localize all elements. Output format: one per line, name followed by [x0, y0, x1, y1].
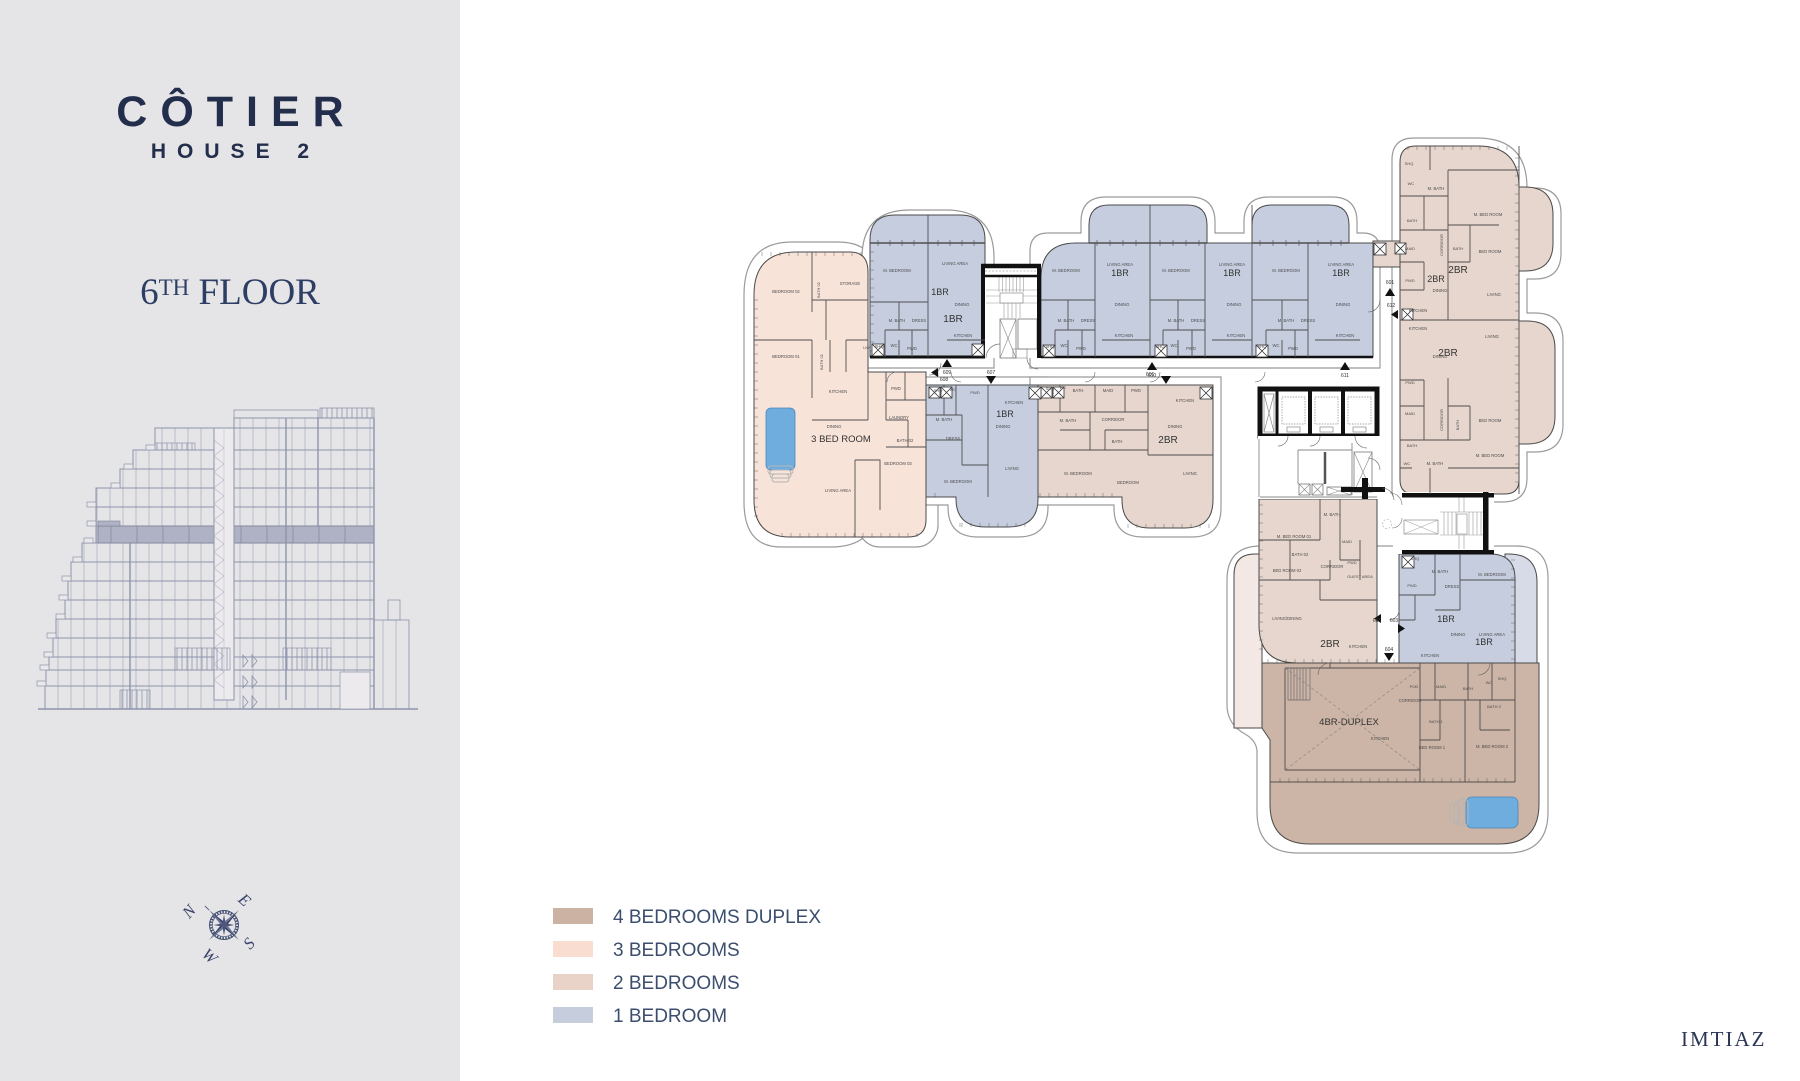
- svg-text:LIVING: LIVING: [1183, 471, 1197, 476]
- svg-text:CORRIDOR: CORRIDOR: [1102, 417, 1125, 422]
- svg-text:KITCHEN: KITCHEN: [829, 389, 847, 394]
- svg-text:LIVING: LIVING: [1485, 334, 1499, 339]
- svg-text:LIVING AREA: LIVING AREA: [1328, 262, 1354, 267]
- svg-text:LNN: LNN: [863, 346, 871, 350]
- svg-text:KITCHEN: KITCHEN: [1005, 400, 1023, 405]
- svg-text:M. BEDROOM: M. BEDROOM: [1052, 268, 1080, 273]
- svg-text:M. BATH: M. BATH: [1324, 512, 1341, 517]
- svg-text:M. BED ROOM: M. BED ROOM: [1476, 453, 1505, 458]
- svg-text:BED ROOM: BED ROOM: [1479, 249, 1502, 254]
- svg-text:DINING: DINING: [1433, 288, 1448, 293]
- svg-text:M. BATH: M. BATH: [936, 417, 953, 422]
- svg-text:SHQ: SHQ: [1257, 344, 1267, 349]
- svg-text:M. BEDROOM: M. BEDROOM: [1064, 471, 1092, 476]
- svg-text:1BR: 1BR: [1332, 268, 1350, 278]
- svg-text:DRESS: DRESS: [912, 318, 927, 323]
- svg-text:LIVING AREA: LIVING AREA: [942, 261, 968, 266]
- svg-text:605: 605: [1373, 618, 1382, 624]
- svg-text:BATH 02: BATH 02: [1292, 552, 1309, 557]
- svg-text:DRESS: DRESS: [1301, 318, 1316, 323]
- svg-text:WC: WC: [1061, 343, 1068, 348]
- svg-text:PWD: PWD: [1076, 346, 1086, 351]
- svg-text:KITCHEN: KITCHEN: [1227, 333, 1245, 338]
- svg-text:BATH 02: BATH 02: [816, 281, 821, 298]
- svg-text:609: 609: [943, 370, 952, 376]
- svg-text:LIVING AREA: LIVING AREA: [825, 488, 851, 493]
- svg-text:M. BEDROOM: M. BEDROOM: [1478, 572, 1506, 577]
- svg-text:WC: WC: [1486, 680, 1493, 685]
- svg-text:1BR: 1BR: [1475, 637, 1493, 647]
- svg-text:BATH 02: BATH 02: [897, 438, 914, 443]
- svg-text:WC: WC: [1408, 181, 1415, 186]
- svg-text:DRESS: DRESS: [1081, 318, 1096, 323]
- svg-text:BED ROOM 1: BED ROOM 1: [1419, 745, 1446, 750]
- svg-text:BEDROOM 02: BEDROOM 02: [772, 289, 800, 294]
- svg-text:BATH: BATH: [1112, 439, 1123, 444]
- svg-text:1BR: 1BR: [931, 287, 949, 297]
- svg-text:LIVING AREA: LIVING AREA: [1107, 262, 1133, 267]
- svg-text:1BR: 1BR: [1437, 614, 1455, 624]
- svg-text:LIVING AREA: LIVING AREA: [1479, 632, 1505, 637]
- svg-text:4BR-DUPLEX: 4BR-DUPLEX: [1319, 717, 1379, 728]
- svg-text:PWD: PWD: [1405, 380, 1414, 385]
- svg-text:KITCHEN: KITCHEN: [1115, 333, 1133, 338]
- svg-text:MAID: MAID: [1342, 539, 1352, 544]
- svg-text:BATH: BATH: [1463, 686, 1473, 691]
- svg-text:BATH: BATH: [1407, 218, 1417, 223]
- svg-text:WC: WC: [1273, 343, 1280, 348]
- svg-text:PWD: PWD: [1131, 388, 1141, 393]
- svg-text:POD: POD: [1410, 684, 1419, 689]
- svg-text:M. BATH: M. BATH: [1060, 418, 1077, 423]
- svg-text:BEDROOM 01: BEDROOM 01: [772, 354, 800, 359]
- svg-text:WC: WC: [1060, 385, 1067, 390]
- svg-text:PWD: PWD: [1407, 583, 1416, 588]
- svg-text:KITCHEN: KITCHEN: [1409, 308, 1427, 313]
- svg-text:BED ROOM 02: BED ROOM 02: [1273, 568, 1302, 573]
- svg-text:PWD: PWD: [970, 390, 979, 395]
- svg-text:PWD: PWD: [907, 346, 917, 351]
- svg-text:SHQ: SHQ: [1405, 161, 1414, 166]
- svg-text:603: 603: [1390, 618, 1399, 624]
- svg-text:SHQ: SHQ: [1411, 556, 1420, 561]
- svg-text:BATH: BATH: [1073, 388, 1084, 393]
- svg-text:DRESS: DRESS: [1445, 584, 1460, 589]
- svg-text:M. BED ROOM: M. BED ROOM: [1474, 212, 1503, 217]
- svg-text:PWD: PWD: [1186, 346, 1196, 351]
- svg-text:M. BEDROOM: M. BEDROOM: [883, 268, 911, 273]
- svg-text:KITCHEN: KITCHEN: [1176, 398, 1194, 403]
- svg-text:DINING: DINING: [996, 424, 1011, 429]
- svg-text:LIVING/DINING: LIVING/DINING: [1272, 616, 1302, 621]
- svg-text:2BR: 2BR: [1158, 435, 1177, 446]
- svg-text:WC: WC: [891, 343, 898, 348]
- svg-text:PWD: PWD: [1288, 346, 1298, 351]
- svg-text:1BR: 1BR: [1111, 268, 1129, 278]
- svg-text:DRESS: DRESS: [946, 436, 961, 441]
- svg-text:BEDROOM 03: BEDROOM 03: [884, 461, 912, 466]
- svg-text:DINING: DINING: [955, 302, 970, 307]
- svg-text:M. BATH: M. BATH: [1058, 318, 1075, 323]
- svg-text:BATH 2: BATH 2: [1487, 704, 1501, 709]
- svg-text:SHQ: SHQ: [1045, 344, 1055, 349]
- svg-text:PWD: PWD: [1347, 560, 1356, 565]
- svg-text:KITCHEN: KITCHEN: [1336, 333, 1354, 338]
- svg-text:2BR: 2BR: [1320, 639, 1339, 650]
- svg-text:607: 607: [987, 370, 996, 376]
- svg-text:2BR: 2BR: [1427, 274, 1445, 284]
- svg-text:CORRIDOR: CORRIDOR: [1321, 564, 1344, 569]
- svg-text:WC: WC: [1404, 461, 1411, 466]
- svg-text:SHQ: SHQ: [1155, 344, 1165, 349]
- svg-text:M. BED ROOM 01: M. BED ROOM 01: [1277, 534, 1312, 539]
- svg-text:M. BEDROOM: M. BEDROOM: [1272, 268, 1300, 273]
- svg-text:BEDROOM: BEDROOM: [1117, 480, 1139, 485]
- svg-text:CORRIDOR: CORRIDOR: [1399, 698, 1422, 703]
- svg-text:DINING: DINING: [1336, 302, 1351, 307]
- svg-text:CORRIDOR: CORRIDOR: [1439, 409, 1444, 431]
- svg-text:SHQ: SHQ: [1498, 676, 1507, 681]
- svg-text:MAID: MAID: [1405, 246, 1415, 251]
- svg-text:BATH: BATH: [1455, 420, 1460, 430]
- svg-text:612: 612: [1387, 303, 1396, 309]
- svg-text:1BR: 1BR: [943, 314, 962, 325]
- svg-text:M. BEDROOM: M. BEDROOM: [1162, 268, 1190, 273]
- svg-text:WC: WC: [950, 387, 957, 392]
- svg-text:DRESS: DRESS: [1191, 318, 1206, 323]
- svg-text:LIVING: LIVING: [1005, 466, 1019, 471]
- svg-text:DINING: DINING: [1227, 302, 1242, 307]
- svg-text:611: 611: [1341, 373, 1349, 379]
- svg-text:2BR: 2BR: [1448, 265, 1467, 276]
- svg-text:MAID: MAID: [1436, 684, 1446, 689]
- svg-text:DINING: DINING: [1433, 354, 1448, 359]
- svg-text:DINING: DINING: [1168, 424, 1183, 429]
- svg-text:SHQ: SHQ: [874, 344, 884, 349]
- svg-text:BATH: BATH: [1407, 443, 1417, 448]
- svg-text:M. BATH: M. BATH: [1428, 186, 1445, 191]
- svg-text:MAID: MAID: [1103, 388, 1113, 393]
- svg-text:CORRIDOR: CORRIDOR: [1439, 234, 1444, 256]
- svg-text:M. BATH: M. BATH: [1427, 461, 1444, 466]
- svg-text:601: 601: [1386, 280, 1395, 286]
- svg-text:M. BED ROOM 2: M. BED ROOM 2: [1476, 744, 1509, 749]
- svg-text:M. BATH: M. BATH: [889, 318, 906, 323]
- svg-text:DINING: DINING: [827, 424, 842, 429]
- svg-text:BED ROOM: BED ROOM: [1479, 418, 1502, 423]
- svg-text:PWD: PWD: [1405, 278, 1414, 283]
- svg-text:3 BED ROOM: 3 BED ROOM: [811, 434, 871, 445]
- svg-text:KITCHEN: KITCHEN: [1409, 326, 1427, 331]
- svg-text:BATH 01: BATH 01: [819, 353, 824, 370]
- svg-text:LIVING: LIVING: [1487, 292, 1501, 297]
- svg-text:BATH: BATH: [1453, 246, 1463, 251]
- svg-text:SHQ: SHQ: [1046, 386, 1055, 391]
- svg-text:GUEST AREA: GUEST AREA: [1347, 574, 1373, 579]
- svg-text:608: 608: [940, 377, 949, 383]
- svg-text:1BR: 1BR: [996, 409, 1014, 419]
- svg-text:606: 606: [1146, 372, 1155, 378]
- svg-text:SHQ: SHQ: [934, 388, 943, 393]
- svg-text:WC: WC: [1171, 343, 1178, 348]
- svg-text:M. BATH: M. BATH: [1168, 318, 1185, 323]
- svg-text:M. BEDROOM: M. BEDROOM: [944, 479, 972, 484]
- svg-text:LAUNDRY: LAUNDRY: [889, 415, 909, 420]
- svg-text:DINING: DINING: [1451, 632, 1466, 637]
- svg-text:1BR: 1BR: [1223, 268, 1241, 278]
- svg-text:KITCHEN: KITCHEN: [1371, 736, 1389, 741]
- svg-text:KITCHEN: KITCHEN: [954, 333, 972, 338]
- svg-text:DINING: DINING: [1115, 302, 1130, 307]
- svg-text:LIVING AREA: LIVING AREA: [1219, 262, 1245, 267]
- svg-text:M. BATH: M. BATH: [1432, 569, 1449, 574]
- svg-text:PWD: PWD: [891, 386, 901, 391]
- svg-text:604: 604: [1385, 647, 1394, 653]
- svg-text:BATH 1: BATH 1: [1429, 719, 1443, 724]
- svg-text:KITCHEN: KITCHEN: [1421, 653, 1439, 658]
- svg-text:MAID: MAID: [1405, 411, 1415, 416]
- svg-text:STORAGE: STORAGE: [840, 281, 861, 286]
- svg-text:KITCHEN: KITCHEN: [1349, 644, 1367, 649]
- svg-text:M. BATH: M. BATH: [1278, 318, 1295, 323]
